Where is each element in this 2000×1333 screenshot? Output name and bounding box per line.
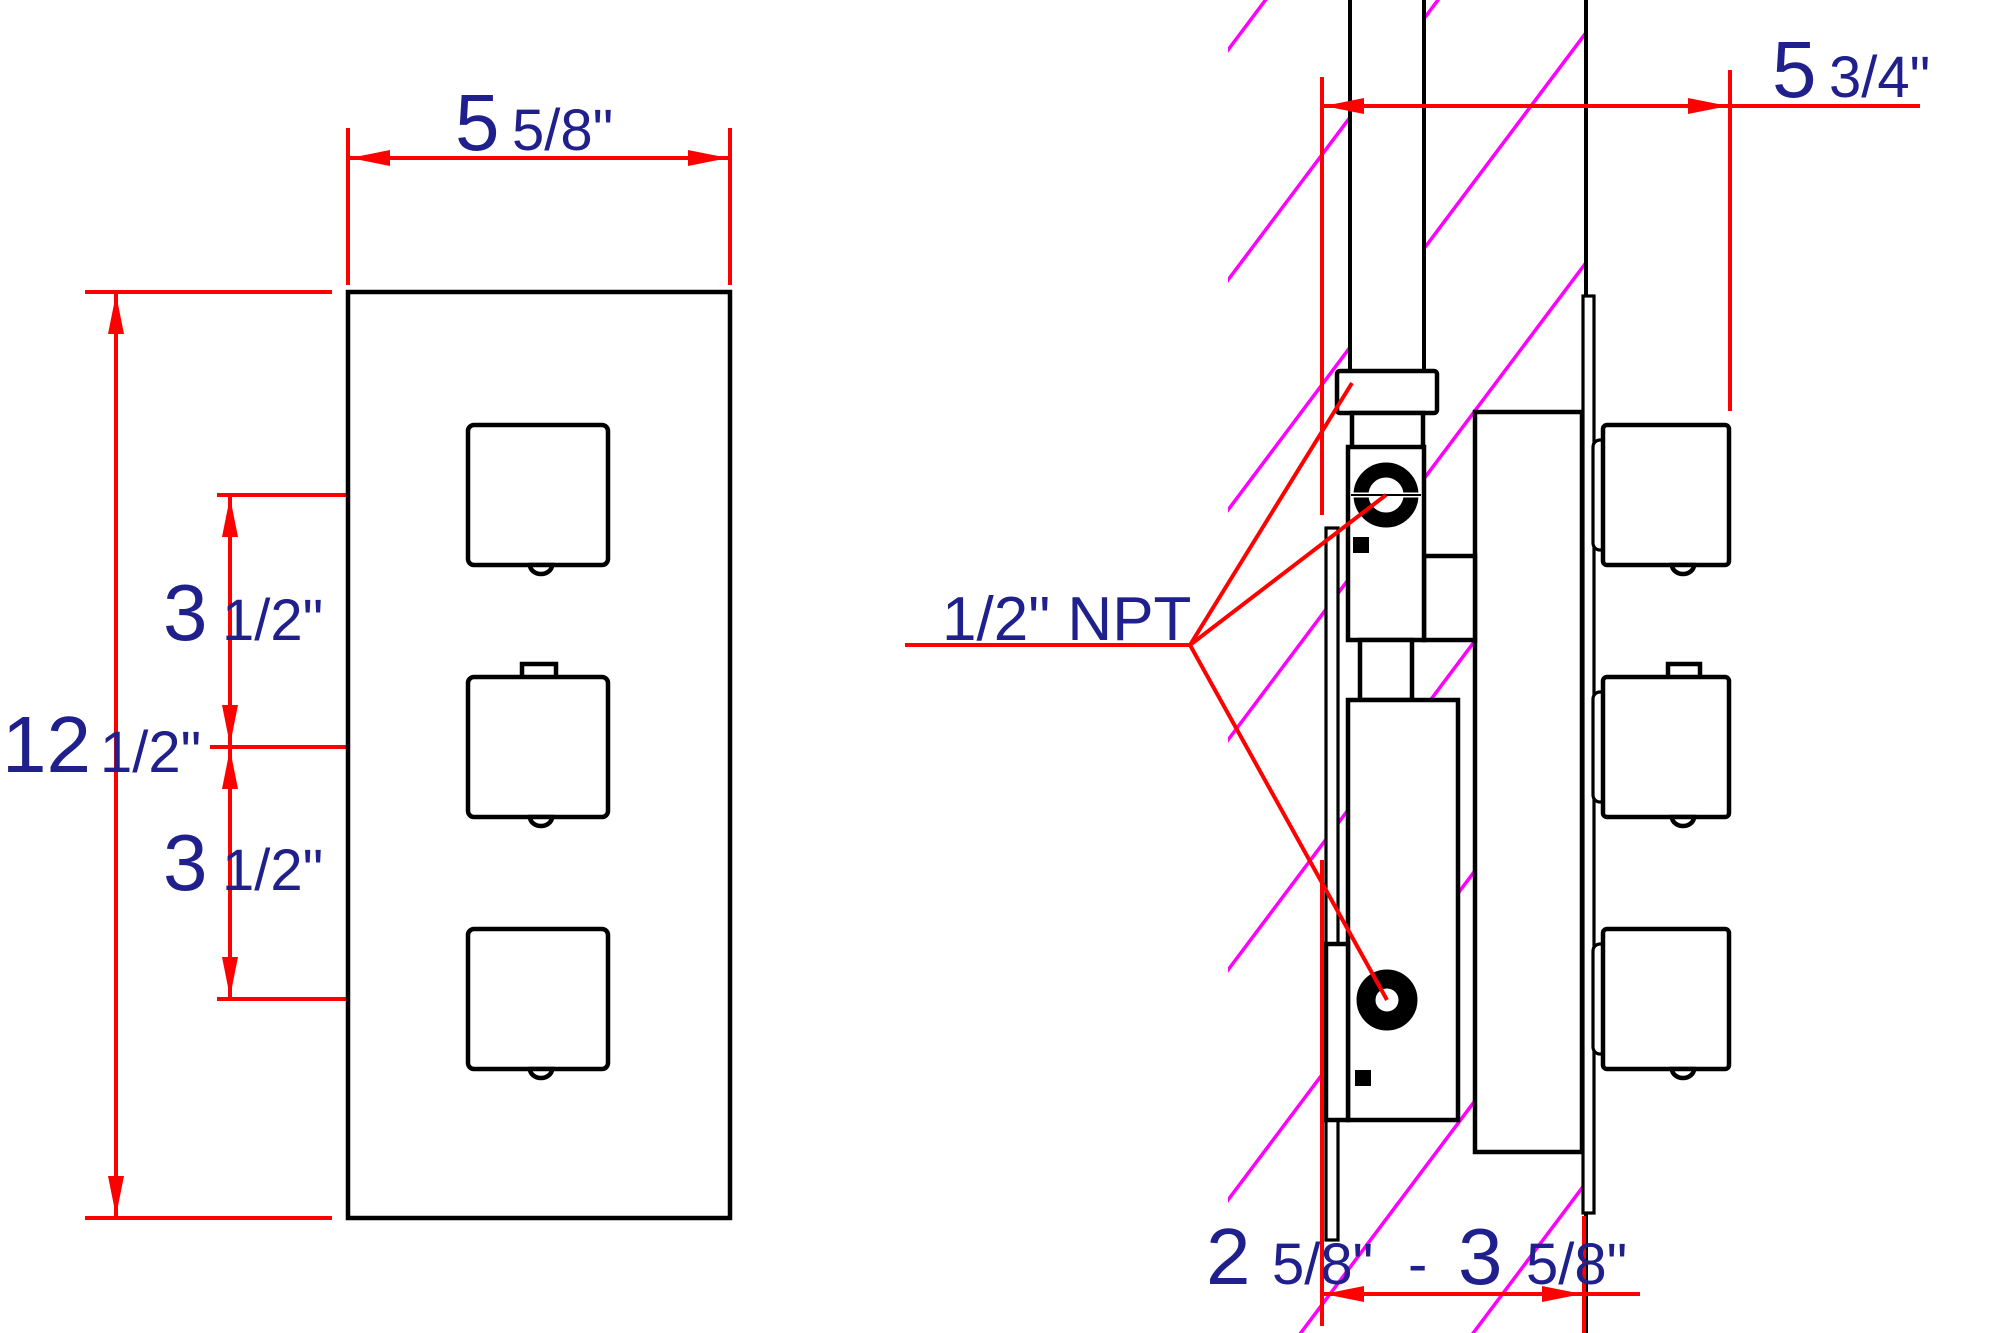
handle-side-top (1603, 425, 1729, 565)
valve-foot (1326, 944, 1348, 1120)
handles-side-view (1593, 425, 1729, 1078)
supply-pipe (1350, 0, 1424, 373)
label-spacing-bottom-whole: 3 (163, 818, 208, 907)
label-range-min-fraction: 5/8" (1272, 1232, 1373, 1297)
drawing-canvas: 5 5/8" 12 1/2" 3 1/2" 3 1/2" 1/2" NPT 5 … (0, 0, 2000, 1333)
valve-bridge (1424, 556, 1475, 640)
handle-front-bottom (468, 929, 608, 1069)
label-plate-width-whole: 5 (455, 78, 500, 167)
npt-leader (905, 383, 1387, 1000)
handle-side-middle (1603, 677, 1729, 817)
valve-top-neck (1352, 413, 1423, 449)
valve-housing-box (1475, 412, 1582, 1152)
plaster-guard-plate (1326, 528, 1338, 1240)
label-plate-height-fraction: 1/2" (100, 720, 201, 785)
label-spacing-top-whole: 3 (163, 568, 208, 657)
label-range-max-whole: 3 (1458, 1212, 1503, 1301)
label-spacing-bottom-fraction: 1/2" (222, 838, 323, 903)
pipe-fitting (1337, 371, 1437, 413)
label-plate-height-whole: 12 (2, 700, 91, 789)
label-range-separator: - (1408, 1232, 1427, 1297)
handles-front-view (468, 425, 608, 1078)
label-spacing-top-fraction: 1/2" (222, 588, 323, 653)
label-range-max-fraction: 5/8" (1526, 1232, 1627, 1297)
mounting-screw-lower (1355, 1070, 1371, 1086)
technical-drawing-shower-valve: 5 5/8" 12 1/2" 3 1/2" 3 1/2" 1/2" NPT 5 … (0, 0, 2000, 1333)
label-plate-width-fraction: 5/8" (512, 98, 613, 163)
label-inlet-thread: 1/2" NPT (942, 585, 1191, 654)
mounting-screw-upper (1353, 537, 1369, 553)
handle-front-middle (468, 677, 608, 817)
label-valve-depth-fraction: 3/4" (1829, 45, 1930, 110)
handle-front-top (468, 425, 608, 565)
handle-side-bottom (1603, 929, 1729, 1069)
label-range-min-whole: 2 (1206, 1212, 1251, 1301)
label-valve-depth-whole: 5 (1772, 25, 1817, 114)
